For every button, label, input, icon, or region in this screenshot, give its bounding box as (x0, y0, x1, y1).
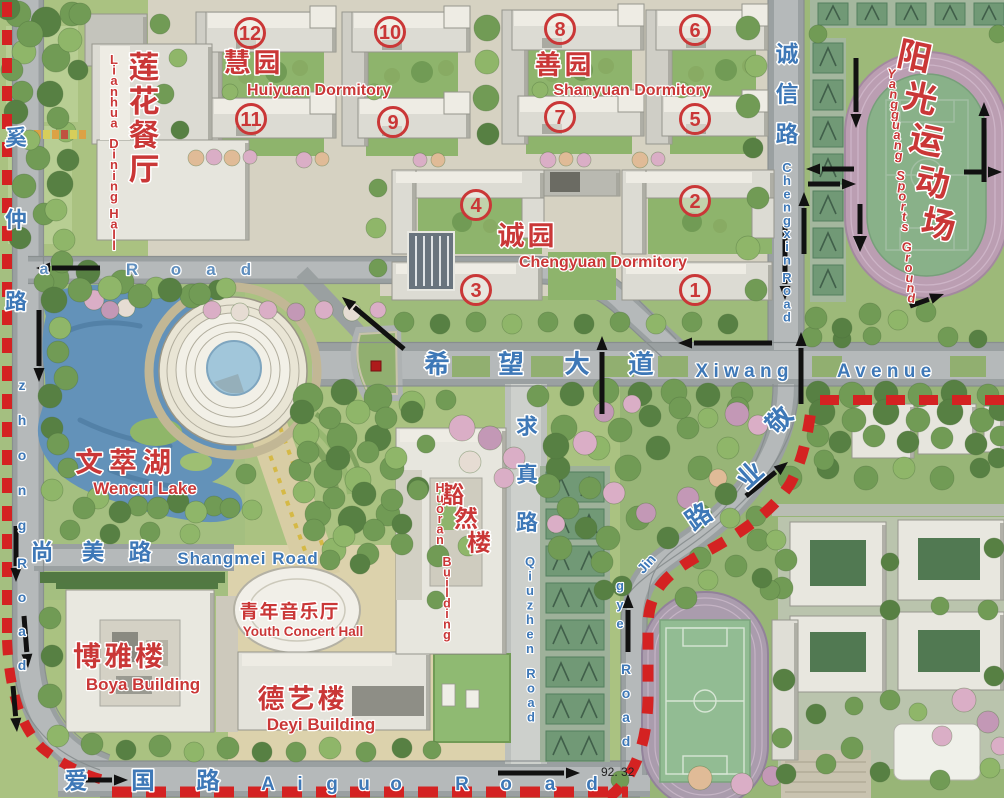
svg-text:A v e n u e: A v e n u e (837, 361, 931, 382)
svg-text:1: 1 (689, 280, 700, 302)
svg-text:9: 9 (387, 112, 398, 134)
svg-text:i: i (297, 774, 302, 795)
svg-text:e: e (526, 627, 533, 642)
svg-text:92. 32: 92. 32 (601, 765, 635, 779)
svg-text:h: h (526, 612, 534, 627)
svg-text:h: h (18, 412, 27, 428)
svg-text:6: 6 (689, 20, 700, 42)
svg-text:R: R (17, 555, 27, 571)
svg-text:o: o (18, 447, 27, 463)
svg-text:z: z (19, 377, 26, 393)
svg-text:n: n (526, 641, 534, 656)
svg-text:R: R (526, 666, 536, 681)
svg-text:R: R (126, 260, 138, 279)
svg-text:Shangmei Road: Shangmei Road (177, 549, 318, 568)
svg-text:i: i (528, 569, 532, 584)
svg-text:a: a (206, 260, 216, 279)
svg-text:2: 2 (689, 191, 700, 213)
svg-text:o: o (527, 681, 535, 696)
svg-text:d: d (586, 774, 598, 795)
svg-text:d: d (622, 733, 631, 749)
svg-text:n: n (18, 482, 27, 498)
svg-text:8: 8 (554, 19, 565, 41)
svg-text:e: e (616, 616, 623, 631)
svg-text:g: g (110, 189, 118, 204)
svg-text:a: a (110, 116, 118, 131)
svg-text:g: g (443, 628, 451, 642)
svg-text:a: a (545, 774, 556, 795)
svg-text:Q: Q (525, 554, 535, 569)
svg-text:g: g (326, 774, 338, 795)
svg-text:12: 12 (239, 23, 261, 45)
svg-text:4: 4 (470, 195, 482, 217)
svg-text:Boya Building: Boya Building (86, 675, 200, 694)
svg-text:n: n (436, 533, 444, 547)
svg-text:Chengyuan Dormitory: Chengyuan Dormitory (519, 254, 687, 271)
svg-text:R: R (455, 774, 469, 795)
svg-text:3: 3 (470, 280, 481, 302)
svg-text:11: 11 (240, 109, 261, 131)
svg-text:7: 7 (554, 107, 565, 129)
svg-text:X i w a n g: X i w a n g (696, 361, 789, 382)
svg-text:n: n (783, 252, 791, 267)
svg-text:a: a (18, 623, 26, 639)
svg-text:o: o (18, 589, 27, 605)
svg-text:y: y (616, 597, 624, 612)
svg-text:o: o (622, 685, 631, 701)
svg-text:d: d (241, 260, 251, 279)
svg-text:o: o (171, 260, 181, 279)
svg-text:A: A (261, 774, 275, 795)
svg-text:z: z (527, 598, 534, 613)
svg-text:d: d (783, 310, 791, 325)
svg-text:a: a (527, 695, 535, 710)
svg-text:5: 5 (689, 109, 700, 131)
svg-text:g: g (616, 578, 624, 593)
svg-text:g: g (18, 517, 27, 533)
svg-text:u: u (526, 583, 534, 598)
svg-text:o: o (500, 774, 512, 795)
svg-text:o: o (390, 774, 402, 795)
svg-text:d: d (527, 710, 535, 725)
svg-text:l: l (112, 238, 116, 253)
svg-text:R: R (621, 661, 631, 677)
svg-text:Shanyuan Dormitory: Shanyuan Dormitory (553, 82, 710, 99)
svg-text:a: a (40, 261, 49, 278)
svg-text:d: d (18, 657, 27, 673)
svg-text:10: 10 (379, 22, 401, 44)
svg-text:Huiyuan Dormitory: Huiyuan Dormitory (247, 82, 391, 99)
svg-text:u: u (358, 774, 370, 795)
svg-text:Wencui Lake: Wencui Lake (93, 479, 197, 498)
svg-text:Youth Concert Hall: Youth Concert Hall (243, 624, 364, 639)
svg-text:a: a (622, 709, 630, 725)
svg-text:Deyi Building: Deyi Building (267, 715, 376, 734)
